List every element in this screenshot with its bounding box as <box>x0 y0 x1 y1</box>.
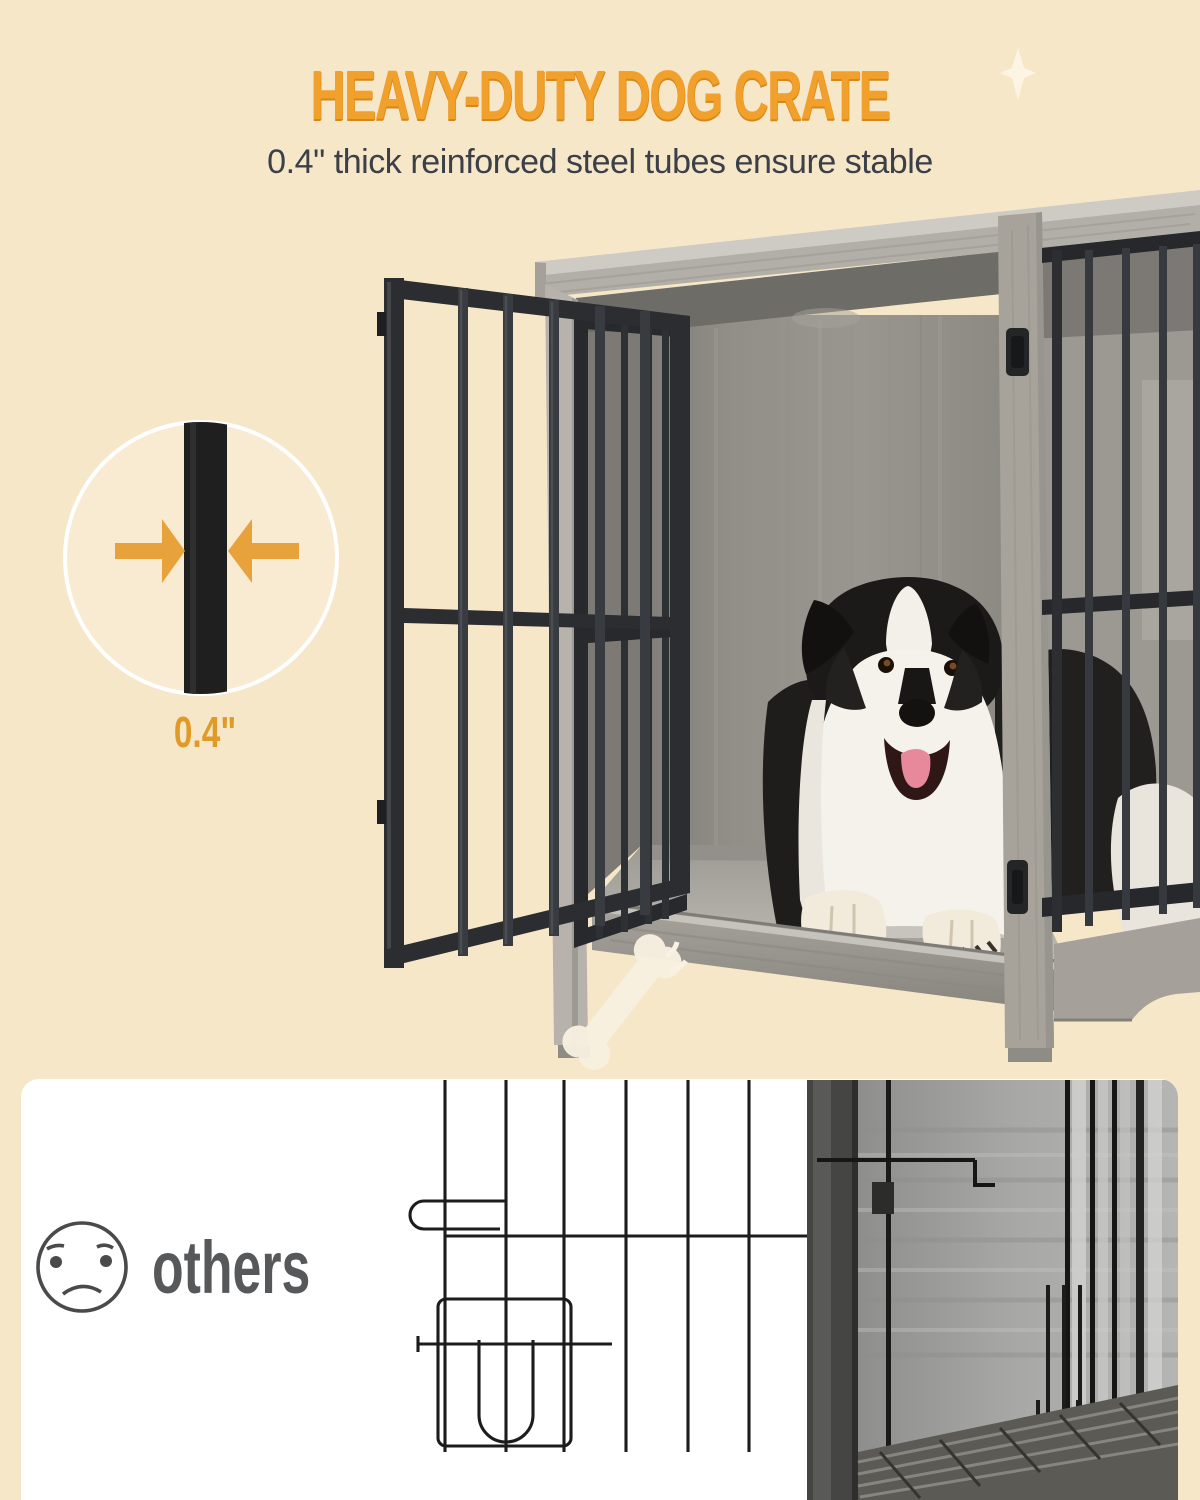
svg-text:0.4": 0.4" <box>174 709 236 757</box>
